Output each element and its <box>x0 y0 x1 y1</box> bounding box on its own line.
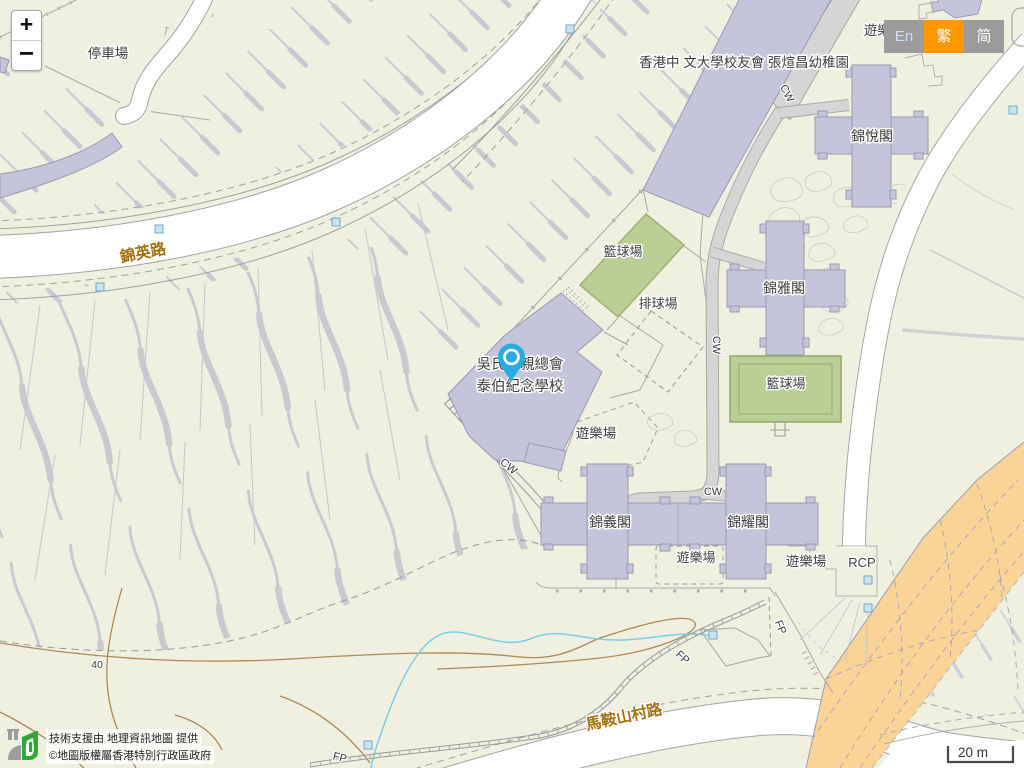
svg-text:錦悅閣: 錦悅閣 <box>851 128 893 144</box>
svg-text:遊樂場: 遊樂場 <box>576 425 617 441</box>
svg-text:錦義閣: 錦義閣 <box>589 514 631 530</box>
svg-text:40: 40 <box>91 659 103 671</box>
svg-text:香港中 文大學校友會 張煊昌幼稚園: 香港中 文大學校友會 張煊昌幼稚園 <box>639 54 849 70</box>
svg-text:CW: CW <box>710 336 722 355</box>
svg-text:泰伯紀念學校: 泰伯紀念學校 <box>477 377 564 395</box>
svg-text:錦耀閣: 錦耀閣 <box>727 514 769 530</box>
svg-text:籃球場: 籃球場 <box>766 376 805 391</box>
svg-text:錦雅閣: 錦雅閣 <box>763 280 805 296</box>
svg-text:20 m: 20 m <box>958 745 988 760</box>
svg-text:遊樂場: 遊樂場 <box>676 550 715 565</box>
svg-text:CW: CW <box>704 486 723 498</box>
svg-text:排球場: 排球場 <box>638 296 677 311</box>
svg-text:RCP: RCP <box>848 555 875 570</box>
svg-text:停車場: 停車場 <box>88 45 129 61</box>
svg-text:籃球場: 籃球場 <box>603 244 642 259</box>
svg-text:遊樂場: 遊樂場 <box>786 553 827 569</box>
